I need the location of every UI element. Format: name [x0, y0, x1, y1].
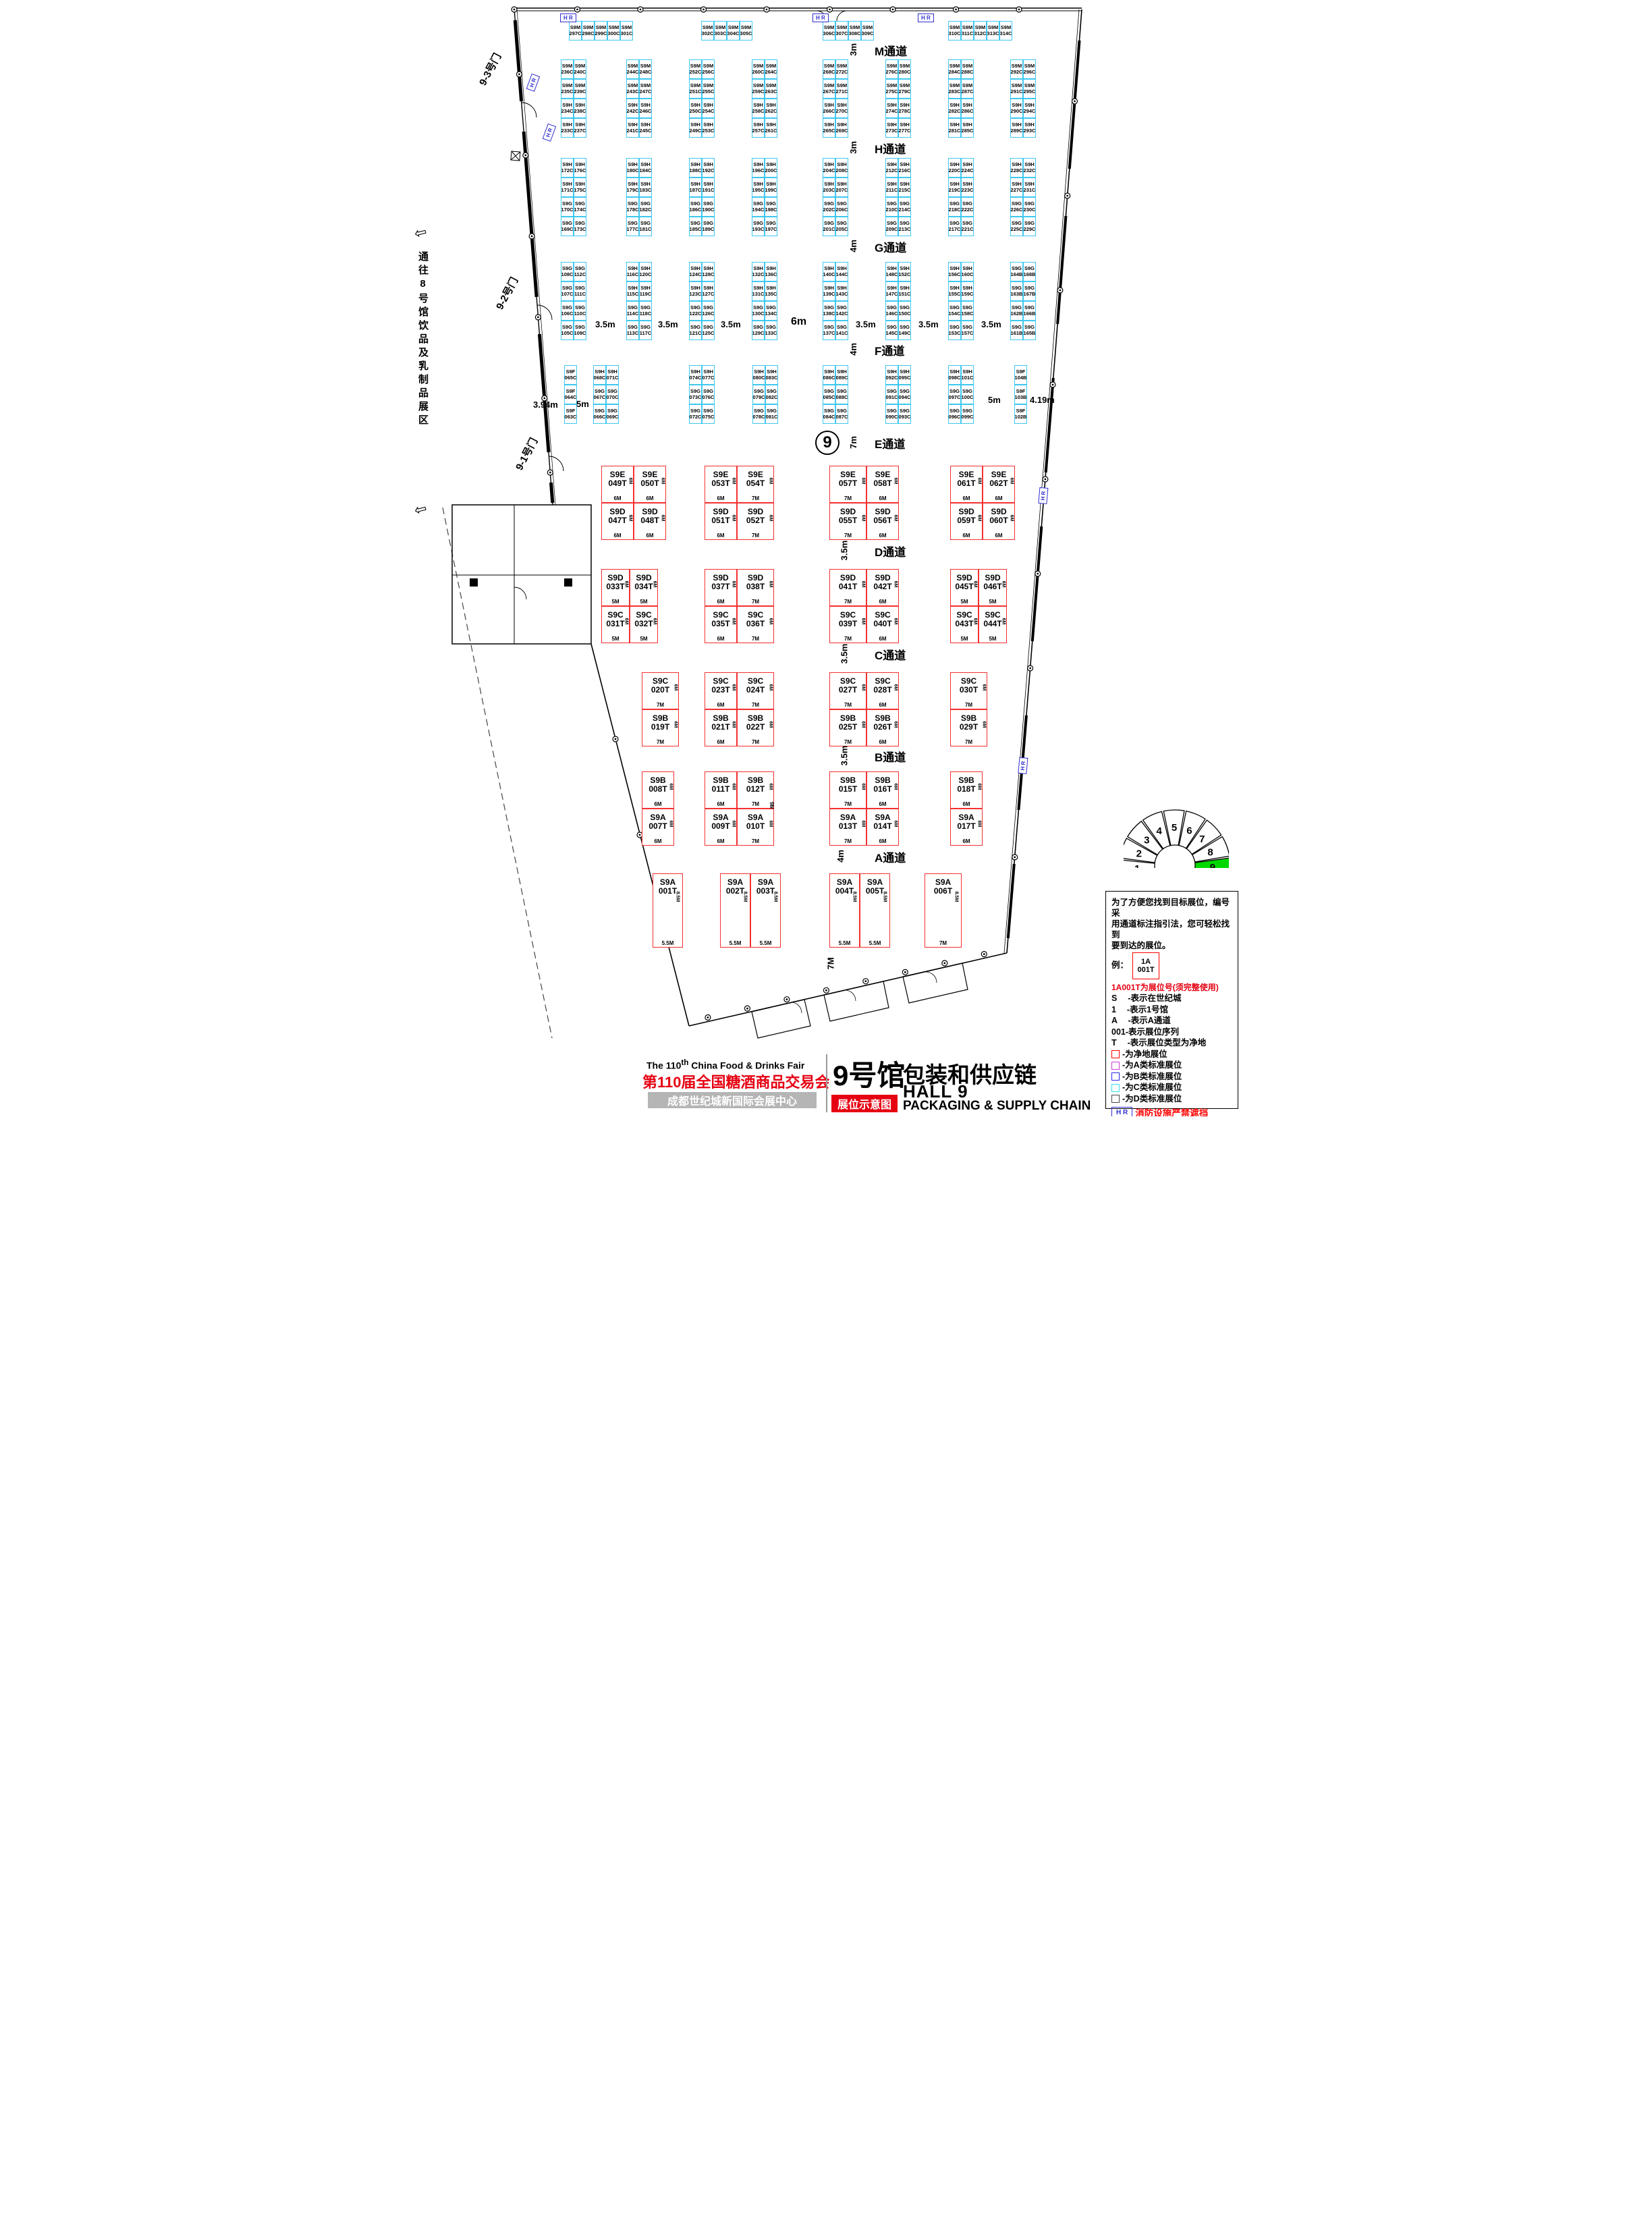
booth-S9D-042T[interactable]: S9D042T6M6M [866, 569, 899, 606]
booth-S9H-139C[interactable]: S9H139C [823, 281, 835, 301]
booth-S9B-011T[interactable]: S9B011T6M6M [705, 771, 737, 809]
booth-S9G-117C[interactable]: S9G117C [639, 321, 652, 340]
booth-S9D-047T[interactable]: S9D047T6M6M [601, 503, 634, 540]
booth-S9G-078C[interactable]: S9G078C [752, 404, 765, 424]
booth-S9G-202C[interactable]: S9G202C [823, 197, 835, 217]
booth-S9G-118C[interactable]: S9G118C [639, 301, 652, 321]
booth-S9F-064C[interactable]: S9F064C [564, 385, 577, 404]
booth-S9G-154C[interactable]: S9G154C [948, 301, 961, 321]
booth-S9A-007T[interactable]: S9A007T6M6M [642, 809, 674, 846]
booth-S9M-312C[interactable]: S9M312C [974, 21, 987, 40]
booth-S9A-017T[interactable]: S9A017T6M6M [950, 809, 983, 846]
booth-S9G-170C[interactable]: S9G170C [561, 197, 574, 217]
booth-S9M-303C[interactable]: S9M303C [714, 21, 727, 40]
booth-S9C-030T[interactable]: S9C030T6M7M [950, 672, 987, 709]
booth-S9H-293C[interactable]: S9H293C [1023, 118, 1036, 138]
booth-S9M-267C[interactable]: S9M267C [823, 79, 835, 99]
booth-S9G-193C[interactable]: S9G193C [752, 217, 765, 236]
booth-S9H-224C[interactable]: S9H224C [961, 158, 974, 178]
booth-S9M-296C[interactable]: S9M296C [1023, 59, 1036, 79]
booth-S9A-010T[interactable]: S9A010T6M7M [737, 809, 774, 846]
booth-S9G-174C[interactable]: S9G174C [574, 197, 586, 217]
booth-S9H-191C[interactable]: S9H191C [702, 178, 715, 197]
booth-S9G-190C[interactable]: S9G190C [702, 197, 715, 217]
booth-S9H-234C[interactable]: S9H234C [561, 99, 574, 118]
booth-S9G-213C[interactable]: S9G213C [898, 217, 911, 236]
booth-S9G-146C[interactable]: S9G146C [885, 301, 898, 321]
booth-S9H-123C[interactable]: S9H123C [689, 281, 702, 301]
booth-S9G-130C[interactable]: S9G130C [752, 301, 765, 321]
booth-S9C-035T[interactable]: S9C035T6M6M [705, 606, 737, 643]
booth-S9H-152C[interactable]: S9H152C [898, 262, 911, 281]
booth-S9H-124C[interactable]: S9H124C [689, 262, 702, 281]
booth-S9B-015T[interactable]: S9B015T6M7M [829, 771, 866, 809]
booth-S9G-162B[interactable]: S9G162B [1010, 301, 1023, 321]
booth-S9G-109C[interactable]: S9G109C [574, 321, 586, 340]
booth-S9G-121C[interactable]: S9G121C [689, 321, 702, 340]
booth-S9G-181C[interactable]: S9G181C [639, 217, 652, 236]
booth-S9H-277C[interactable]: S9H277C [898, 118, 911, 138]
booth-S9G-226C[interactable]: S9G226C [1010, 197, 1023, 217]
booth-S9C-044T[interactable]: S9C044T6M5M [979, 606, 1007, 643]
booth-S9H-156C[interactable]: S9H156C [948, 262, 961, 281]
booth-S9M-276C[interactable]: S9M276C [885, 59, 898, 79]
booth-S9H-086C[interactable]: S9H086C [823, 365, 835, 385]
booth-S9H-216C[interactable]: S9H216C [898, 158, 911, 178]
booth-S9M-313C[interactable]: S9M313C [987, 21, 999, 40]
booth-S9H-285C[interactable]: S9H285C [961, 118, 974, 138]
booth-S9H-233C[interactable]: S9H233C [561, 118, 574, 138]
booth-S9E-053T[interactable]: S9E053T6M6M [705, 466, 737, 503]
booth-S9H-241C[interactable]: S9H241C [626, 118, 639, 138]
booth-S9G-198C[interactable]: S9G198C [765, 197, 777, 217]
booth-S9M-272C[interactable]: S9M272C [835, 59, 848, 79]
booth-S9H-254C[interactable]: S9H254C [702, 99, 715, 118]
booth-S9G-138C[interactable]: S9G138C [823, 301, 835, 321]
booth-S9G-168B[interactable]: S9G168B [1023, 262, 1036, 281]
booth-S9G-142C[interactable]: S9G142C [835, 301, 848, 321]
booth-S9H-257C[interactable]: S9H257C [752, 118, 765, 138]
booth-S9H-203C[interactable]: S9H203C [823, 178, 835, 197]
booth-S9G-111C[interactable]: S9G111C [574, 281, 586, 301]
booth-S9C-024T[interactable]: S9C024T6M7M [737, 672, 774, 709]
booth-S9G-099C[interactable]: S9G099C [961, 404, 974, 424]
booth-S9G-114C[interactable]: S9G114C [626, 301, 639, 321]
booth-S9E-050T[interactable]: S9E050T6M6M [634, 466, 666, 503]
booth-S9H-237C[interactable]: S9H237C [574, 118, 586, 138]
booth-S9H-136C[interactable]: S9H136C [765, 262, 777, 281]
halls-minimap[interactable]: 123456789 [1124, 806, 1229, 868]
booth-S9G-209C[interactable]: S9G209C [885, 217, 898, 236]
booth-S9G-106C[interactable]: S9G106C [561, 301, 574, 321]
booth-S9H-160C[interactable]: S9H160C [961, 262, 974, 281]
booth-S9H-262C[interactable]: S9H262C [765, 99, 777, 118]
booth-S9H-144C[interactable]: S9H144C [835, 262, 848, 281]
booth-S9C-023T[interactable]: S9C023T6M6M [705, 672, 737, 709]
booth-S9H-270C[interactable]: S9H270C [835, 99, 848, 118]
booth-S9M-275C[interactable]: S9M275C [885, 79, 898, 99]
booth-S9M-298C[interactable]: S9M298C [582, 21, 595, 40]
booth-S9H-183C[interactable]: S9H183C [639, 178, 652, 197]
booth-S9E-057T[interactable]: S9E057T6M7M [829, 466, 866, 503]
booth-S9H-115C[interactable]: S9H115C [626, 281, 639, 301]
booth-S9G-067C[interactable]: S9G067C [593, 385, 606, 404]
booth-S9H-282C[interactable]: S9H282C [948, 99, 961, 118]
booth-S9G-081C[interactable]: S9G081C [765, 404, 778, 424]
booth-S9B-026T[interactable]: S9B026T6M6M [866, 709, 899, 746]
booth-S9G-206C[interactable]: S9G206C [835, 197, 848, 217]
booth-S9M-291C[interactable]: S9M291C [1010, 79, 1023, 99]
booth-S9H-212C[interactable]: S9H212C [885, 158, 898, 178]
booth-S9G-186C[interactable]: S9G186C [689, 197, 702, 217]
booth-S9M-305C[interactable]: S9M305C [740, 21, 752, 40]
booth-S9G-090C[interactable]: S9G090C [885, 404, 898, 424]
booth-S9H-219C[interactable]: S9H219C [948, 178, 961, 197]
booth-S9G-082C[interactable]: S9G082C [765, 385, 778, 404]
booth-S9G-166B[interactable]: S9G166B [1023, 301, 1036, 321]
booth-S9H-274C[interactable]: S9H274C [885, 99, 898, 118]
booth-S9M-308C[interactable]: S9M308C [848, 21, 861, 40]
booth-S9H-171C[interactable]: S9H171C [561, 178, 574, 197]
booth-S9H-068C[interactable]: S9H068C [593, 365, 606, 385]
booth-S9H-261C[interactable]: S9H261C [765, 118, 777, 138]
booth-S9M-240C[interactable]: S9M240C [574, 59, 586, 79]
booth-S9B-025T[interactable]: S9B025T6M7M [829, 709, 866, 746]
booth-S9H-204C[interactable]: S9H204C [823, 158, 835, 178]
booth-S9D-051T[interactable]: S9D051T6M6M [705, 503, 737, 540]
booth-S9G-230C[interactable]: S9G230C [1023, 197, 1036, 217]
booth-S9G-108C[interactable]: S9G108C [561, 262, 574, 281]
booth-S9M-236C[interactable]: S9M236C [561, 59, 574, 79]
booth-S9M-280C[interactable]: S9M280C [898, 59, 911, 79]
booth-S9G-093C[interactable]: S9G093C [898, 404, 911, 424]
booth-S9G-165B[interactable]: S9G165B [1023, 321, 1036, 340]
booth-S9M-248C[interactable]: S9M248C [639, 59, 652, 79]
booth-S9H-071C[interactable]: S9H071C [606, 365, 619, 385]
booth-S9G-088C[interactable]: S9G088C [835, 385, 848, 404]
booth-S9H-195C[interactable]: S9H195C [752, 178, 765, 197]
booth-S9G-091C[interactable]: S9G091C [885, 385, 898, 404]
booth-S9H-131C[interactable]: S9H131C [752, 281, 765, 301]
booth-S9G-153C[interactable]: S9G153C [948, 321, 961, 340]
booth-S9D-048T[interactable]: S9D048T6M6M [634, 503, 666, 540]
booth-S9E-049T[interactable]: S9E049T6M6M [601, 466, 634, 503]
booth-S9G-149C[interactable]: S9G149C [898, 321, 911, 340]
booth-S9H-286C[interactable]: S9H286C [961, 99, 974, 118]
booth-S9D-060T[interactable]: S9D060T6M6M [983, 503, 1015, 540]
booth-S9E-061T[interactable]: S9E061T6M6M [950, 466, 983, 503]
booth-S9M-300C[interactable]: S9M300C [607, 21, 620, 40]
booth-S9D-038T[interactable]: S9D038T6M7M [737, 569, 774, 606]
booth-S9C-027T[interactable]: S9C027T6M7M [829, 672, 866, 709]
booth-S9G-145C[interactable]: S9G145C [885, 321, 898, 340]
booth-S9G-094C[interactable]: S9G094C [898, 385, 911, 404]
booth-S9G-205C[interactable]: S9G205C [835, 217, 848, 236]
booth-S9E-058T[interactable]: S9E058T6M6M [866, 466, 899, 503]
booth-S9H-140C[interactable]: S9H140C [823, 262, 835, 281]
booth-S9H-120C[interactable]: S9H120C [639, 262, 652, 281]
booth-S9G-210C[interactable]: S9G210C [885, 197, 898, 217]
booth-S9G-218C[interactable]: S9G218C [948, 197, 961, 217]
booth-S9H-176C[interactable]: S9H176C [574, 158, 586, 178]
booth-S9G-221C[interactable]: S9G221C [961, 217, 974, 236]
booth-S9D-045T[interactable]: S9D045T6M5M [950, 569, 979, 606]
booth-S9H-220C[interactable]: S9H220C [948, 158, 961, 178]
booth-S9G-167B[interactable]: S9G167B [1023, 281, 1036, 301]
booth-S9G-178C[interactable]: S9G178C [626, 197, 639, 217]
booth-S9D-056T[interactable]: S9D056T6M6M [866, 503, 899, 540]
booth-S9G-073C[interactable]: S9G073C [689, 385, 702, 404]
booth-S9C-040T[interactable]: S9C040T6M6M [866, 606, 899, 643]
booth-S9B-016T[interactable]: S9B016T6M6M [866, 771, 899, 809]
booth-S9M-311C[interactable]: S9M311C [961, 21, 974, 40]
booth-S9M-235C[interactable]: S9M235C [561, 79, 574, 99]
booth-S9H-238C[interactable]: S9H238C [574, 99, 586, 118]
booth-S9A-006T[interactable]: S9A006T8.5M7M [925, 873, 962, 948]
booth-S9G-134C[interactable]: S9G134C [765, 301, 777, 321]
booth-S9H-074C[interactable]: S9H074C [689, 365, 702, 385]
booth-S9H-281C[interactable]: S9H281C [948, 118, 961, 138]
booth-S9G-141C[interactable]: S9G141C [835, 321, 848, 340]
booth-S9E-054T[interactable]: S9E054T6M7M [737, 466, 774, 503]
booth-S9H-143C[interactable]: S9H143C [835, 281, 848, 301]
booth-S9M-247C[interactable]: S9M247C [639, 79, 652, 99]
booth-S9B-029T[interactable]: S9B029T6M7M [950, 709, 987, 746]
booth-S9H-294C[interactable]: S9H294C [1023, 99, 1036, 118]
booth-S9H-242C[interactable]: S9H242C [626, 99, 639, 118]
booth-S9G-112C[interactable]: S9G112C [574, 262, 586, 281]
booth-S9H-148C[interactable]: S9H148C [885, 262, 898, 281]
booth-S9H-192C[interactable]: S9H192C [702, 158, 715, 178]
booth-S9G-096C[interactable]: S9G096C [948, 404, 961, 424]
booth-S9G-201C[interactable]: S9G201C [823, 217, 835, 236]
booth-S9M-292C[interactable]: S9M292C [1010, 59, 1023, 79]
booth-S9C-039T[interactable]: S9C039T6M7M [829, 606, 866, 643]
booth-S9D-055T[interactable]: S9D055T6M7M [829, 503, 866, 540]
booth-S9F-065C[interactable]: S9F065C [564, 365, 577, 385]
booth-S9D-034T[interactable]: S9D034T6M5M [630, 569, 658, 606]
booth-S9G-182C[interactable]: S9G182C [639, 197, 652, 217]
booth-S9H-184C[interactable]: S9H184C [639, 158, 652, 178]
booth-S9G-177C[interactable]: S9G177C [626, 217, 639, 236]
booth-S9B-008T[interactable]: S9B008T6M6M [642, 771, 674, 809]
booth-S9H-092C[interactable]: S9H092C [885, 365, 898, 385]
booth-S9H-098C[interactable]: S9H098C [948, 365, 961, 385]
booth-S9H-180C[interactable]: S9H180C [626, 158, 639, 178]
booth-S9M-288C[interactable]: S9M288C [961, 59, 974, 79]
booth-S9A-005T[interactable]: S9A005T8.5M5.5M [860, 873, 890, 948]
booth-S9C-036T[interactable]: S9C036T6M7M [737, 606, 774, 643]
booth-S9D-041T[interactable]: S9D041T6M7M [829, 569, 866, 606]
booth-S9G-085C[interactable]: S9G085C [823, 385, 835, 404]
booth-S9G-225C[interactable]: S9G225C [1010, 217, 1023, 236]
booth-S9M-309C[interactable]: S9M309C [861, 21, 874, 40]
booth-S9M-239C[interactable]: S9M239C [574, 79, 586, 99]
booth-S9H-269C[interactable]: S9H269C [835, 118, 848, 138]
booth-S9G-163B[interactable]: S9G163B [1010, 281, 1023, 301]
booth-S9G-161B[interactable]: S9G161B [1010, 321, 1023, 340]
booth-S9G-222C[interactable]: S9G222C [961, 197, 974, 217]
booth-S9G-157C[interactable]: S9G157C [961, 321, 974, 340]
booth-S9H-159C[interactable]: S9H159C [961, 281, 974, 301]
booth-S9D-046T[interactable]: S9D046T6M5M [979, 569, 1007, 606]
booth-S9H-132C[interactable]: S9H132C [752, 262, 765, 281]
booth-S9F-063C[interactable]: S9F063C [564, 404, 577, 424]
booth-S9H-080C[interactable]: S9H080C [752, 365, 765, 385]
booth-S9G-214C[interactable]: S9G214C [898, 197, 911, 217]
booth-S9G-097C[interactable]: S9G097C [948, 385, 961, 404]
booth-S9C-031T[interactable]: S9C031T6M5M [601, 606, 630, 643]
booth-S9M-304C[interactable]: S9M304C [727, 21, 740, 40]
booth-S9G-122C[interactable]: S9G122C [689, 301, 702, 321]
booth-S9M-279C[interactable]: S9M279C [898, 79, 911, 99]
booth-S9G-194C[interactable]: S9G194C [752, 197, 765, 217]
booth-S9M-256C[interactable]: S9M256C [702, 59, 715, 79]
booth-S9M-259C[interactable]: S9M259C [752, 79, 765, 99]
booth-S9H-227C[interactable]: S9H227C [1010, 178, 1023, 197]
booth-S9H-208C[interactable]: S9H208C [835, 158, 848, 178]
booth-S9G-133C[interactable]: S9G133C [765, 321, 777, 340]
booth-S9A-014T[interactable]: S9A014T6M6M [866, 809, 899, 846]
booth-S9H-199C[interactable]: S9H199C [765, 178, 777, 197]
booth-S9F-103B[interactable]: S9F103B [1014, 385, 1027, 404]
booth-S9M-252C[interactable]: S9M252C [689, 59, 702, 79]
booth-S9A-003T[interactable]: S9A003T8.5M5.5M [750, 873, 781, 948]
booth-S9M-264C[interactable]: S9M264C [765, 59, 777, 79]
booth-S9G-164B[interactable]: S9G164B [1010, 262, 1023, 281]
booth-S9H-265C[interactable]: S9H265C [823, 118, 835, 138]
booth-S9H-232C[interactable]: S9H232C [1023, 158, 1036, 178]
booth-S9H-196C[interactable]: S9H196C [752, 158, 765, 178]
booth-S9B-019T[interactable]: S9B019T6M7M [642, 709, 679, 746]
booth-S9H-253C[interactable]: S9H253C [702, 118, 715, 138]
booth-S9G-066C[interactable]: S9G066C [593, 404, 606, 424]
booth-S9G-076C[interactable]: S9G076C [702, 385, 715, 404]
booth-S9G-070C[interactable]: S9G070C [606, 385, 619, 404]
booth-S9M-243C[interactable]: S9M243C [626, 79, 639, 99]
booth-S9B-021T[interactable]: S9B021T6M6M [705, 709, 737, 746]
booth-S9A-004T[interactable]: S9A004T8.5M5.5M [829, 873, 860, 948]
booth-S9H-223C[interactable]: S9H223C [961, 178, 974, 197]
booth-S9M-263C[interactable]: S9M263C [765, 79, 777, 99]
booth-S9H-187C[interactable]: S9H187C [689, 178, 702, 197]
booth-S9M-287C[interactable]: S9M287C [961, 79, 974, 99]
booth-S9G-150C[interactable]: S9G150C [898, 301, 911, 321]
booth-S9H-116C[interactable]: S9H116C [626, 262, 639, 281]
booth-S9H-101C[interactable]: S9H101C [961, 365, 974, 385]
booth-S9E-062T[interactable]: S9E062T6M6M [983, 466, 1015, 503]
booth-S9B-018T[interactable]: S9B018T6M6M [950, 771, 983, 809]
booth-S9F-102B[interactable]: S9F102B [1014, 404, 1027, 424]
booth-S9H-077C[interactable]: S9H077C [702, 365, 715, 385]
booth-S9M-271C[interactable]: S9M271C [835, 79, 848, 99]
booth-S9G-197C[interactable]: S9G197C [765, 217, 777, 236]
booth-S9G-072C[interactable]: S9G072C [689, 404, 702, 424]
booth-S9G-126C[interactable]: S9G126C [702, 301, 715, 321]
booth-S9M-302C[interactable]: S9M302C [701, 21, 714, 40]
booth-S9H-083C[interactable]: S9H083C [765, 365, 778, 385]
booth-S9F-104B[interactable]: S9F104B [1014, 365, 1027, 385]
booth-S9G-105C[interactable]: S9G105C [561, 321, 574, 340]
booth-S9H-258C[interactable]: S9H258C [752, 99, 765, 118]
booth-S9M-297C[interactable]: S9M297C [569, 21, 582, 40]
booth-S9G-075C[interactable]: S9G075C [702, 404, 715, 424]
booth-S9H-266C[interactable]: S9H266C [823, 99, 835, 118]
booth-S9M-306C[interactable]: S9M306C [823, 21, 835, 40]
booth-S9C-032T[interactable]: S9C032T6M5M [630, 606, 658, 643]
booth-S9H-273C[interactable]: S9H273C [885, 118, 898, 138]
booth-S9M-299C[interactable]: S9M299C [595, 21, 607, 40]
booth-S9G-125C[interactable]: S9G125C [702, 321, 715, 340]
booth-S9G-158C[interactable]: S9G158C [961, 301, 974, 321]
booth-S9H-250C[interactable]: S9H250C [689, 99, 702, 118]
booth-S9H-089C[interactable]: S9H089C [835, 365, 848, 385]
booth-S9D-052T[interactable]: S9D052T6M7M [737, 503, 774, 540]
booth-S9M-295C[interactable]: S9M295C [1023, 79, 1036, 99]
booth-S9M-255C[interactable]: S9M255C [702, 79, 715, 99]
booth-S9G-069C[interactable]: S9G069C [606, 404, 619, 424]
booth-S9H-179C[interactable]: S9H179C [626, 178, 639, 197]
booth-S9G-129C[interactable]: S9G129C [752, 321, 765, 340]
booth-S9A-009T[interactable]: S9A009T6M6M [705, 809, 737, 846]
booth-S9H-289C[interactable]: S9H289C [1010, 118, 1023, 138]
booth-S9M-310C[interactable]: S9M310C [948, 21, 961, 40]
booth-S9C-043T[interactable]: S9C043T6M5M [950, 606, 979, 643]
booth-S9B-012T[interactable]: S9B012T6M9M7M [737, 771, 774, 809]
booth-S9G-087C[interactable]: S9G087C [835, 404, 848, 424]
booth-S9M-244C[interactable]: S9M244C [626, 59, 639, 79]
booth-S9M-268C[interactable]: S9M268C [823, 59, 835, 79]
booth-S9H-211C[interactable]: S9H211C [885, 178, 898, 197]
booth-S9G-084C[interactable]: S9G084C [823, 404, 835, 424]
booth-S9D-059T[interactable]: S9D059T6M6M [950, 503, 983, 540]
booth-S9M-283C[interactable]: S9M283C [948, 79, 961, 99]
booth-S9H-207C[interactable]: S9H207C [835, 178, 848, 197]
booth-S9A-002T[interactable]: S9A002T8.5M5.5M [720, 873, 750, 948]
booth-S9H-246C[interactable]: S9H246C [639, 99, 652, 118]
booth-S9B-022T[interactable]: S9B022T6M7M [737, 709, 774, 746]
booth-S9H-147C[interactable]: S9H147C [885, 281, 898, 301]
booth-S9C-020T[interactable]: S9C020T6M7M [642, 672, 679, 709]
booth-S9D-033T[interactable]: S9D033T6M5M [601, 569, 630, 606]
booth-S9A-013T[interactable]: S9A013T6M7M [829, 809, 866, 846]
booth-S9M-251C[interactable]: S9M251C [689, 79, 702, 99]
booth-S9G-110C[interactable]: S9G110C [574, 301, 586, 321]
booth-S9H-245C[interactable]: S9H245C [639, 118, 652, 138]
booth-S9H-278C[interactable]: S9H278C [898, 99, 911, 118]
booth-S9H-135C[interactable]: S9H135C [765, 281, 777, 301]
booth-S9A-001T[interactable]: S9A001T8.5M5.5M [653, 873, 683, 948]
booth-S9G-173C[interactable]: S9G173C [574, 217, 586, 236]
booth-S9H-188C[interactable]: S9H188C [689, 158, 702, 178]
booth-S9C-028T[interactable]: S9C028T6M6M [866, 672, 899, 709]
booth-S9H-172C[interactable]: S9H172C [561, 158, 574, 178]
booth-S9G-169C[interactable]: S9G169C [561, 217, 574, 236]
booth-S9H-290C[interactable]: S9H290C [1010, 99, 1023, 118]
booth-S9G-137C[interactable]: S9G137C [823, 321, 835, 340]
booth-S9D-037T[interactable]: S9D037T6M6M [705, 569, 737, 606]
booth-S9H-231C[interactable]: S9H231C [1023, 178, 1036, 197]
booth-S9M-301C[interactable]: S9M301C [620, 21, 633, 40]
booth-S9H-128C[interactable]: S9H128C [702, 262, 715, 281]
booth-S9M-314C[interactable]: S9M314C [999, 21, 1012, 40]
booth-S9G-113C[interactable]: S9G113C [626, 321, 639, 340]
booth-S9M-307C[interactable]: S9M307C [835, 21, 848, 40]
booth-S9H-249C[interactable]: S9H249C [689, 118, 702, 138]
booth-S9H-175C[interactable]: S9H175C [574, 178, 586, 197]
booth-S9H-119C[interactable]: S9H119C [639, 281, 652, 301]
booth-S9G-079C[interactable]: S9G079C [752, 385, 765, 404]
